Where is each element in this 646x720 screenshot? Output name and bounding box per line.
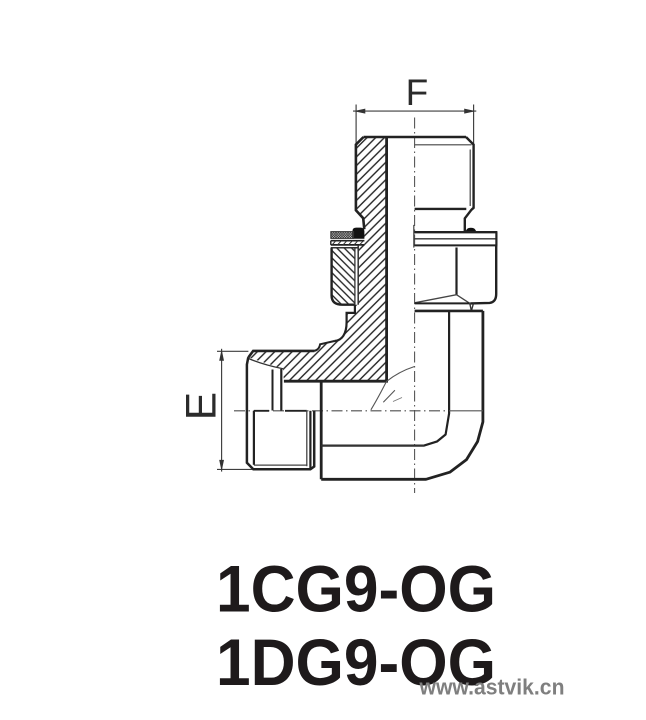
svg-text:E: E — [178, 392, 225, 420]
svg-text:www.astvik.cn: www.astvik.cn — [419, 675, 565, 700]
svg-text:1CG9-OG: 1CG9-OG — [216, 552, 496, 626]
svg-text:F: F — [406, 72, 429, 113]
